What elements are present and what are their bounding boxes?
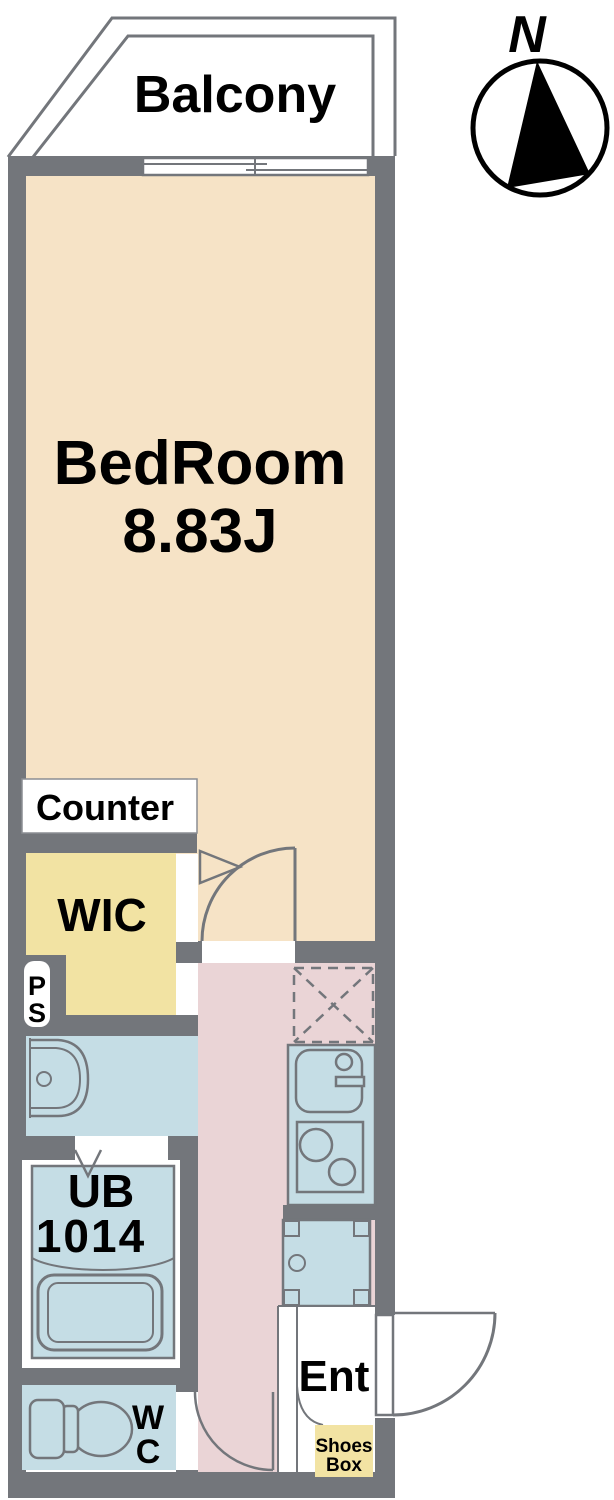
kitchen-faucet-lever [336, 1077, 364, 1086]
counter-top [22, 833, 197, 853]
pipe-space: P S [24, 961, 50, 1028]
shoes-box: Shoes Box [315, 1425, 373, 1477]
counter-label: Counter [36, 787, 174, 828]
wall-divider-right [295, 941, 375, 963]
counter: Counter [22, 779, 197, 833]
balcony: Balcony [8, 18, 395, 157]
floor-plan: Balcony N Counter [0, 0, 614, 1500]
wall-right [375, 156, 395, 1315]
bedroom-size: 8.83J [122, 497, 277, 566]
bedroom-name: BedRoom [54, 429, 347, 498]
entry-door-swing-arc [393, 1313, 495, 1415]
entry-door [376, 1313, 495, 1415]
wic-label: WIC [57, 889, 146, 941]
unit-bath: UB 1014 [22, 1150, 180, 1368]
washer-pan [283, 1220, 370, 1306]
wall-divider-left [176, 941, 202, 963]
bath-size-label: 1014 [36, 1210, 146, 1262]
toilet-tank [30, 1400, 64, 1458]
compass: N [473, 6, 607, 195]
washroom-floor [26, 1036, 198, 1136]
compass-north-label: N [508, 6, 547, 64]
ps-label-s: S [28, 998, 46, 1028]
wc-label-w: W [132, 1399, 165, 1437]
ps-label-p: P [28, 971, 46, 1001]
shoes-box-label-1: Shoes [315, 1436, 372, 1457]
wall-kitchen-washer [283, 1205, 375, 1220]
wc-label-c: C [136, 1433, 161, 1471]
washer-pan-icon [283, 1220, 370, 1306]
washroom-door-opening [75, 1136, 168, 1160]
wall-entry-porch [375, 1418, 395, 1498]
wall-below-bath [8, 1368, 176, 1385]
sliding-window-icon [143, 156, 368, 176]
entry-door-leaf [376, 1315, 393, 1415]
wic-door-opening [176, 854, 198, 942]
balcony-label: Balcony [134, 66, 336, 124]
entrance-label: Ent [299, 1352, 370, 1401]
floor-plan-page: Balcony N Counter [0, 0, 614, 1500]
shoes-box-label-2: Box [326, 1455, 362, 1476]
